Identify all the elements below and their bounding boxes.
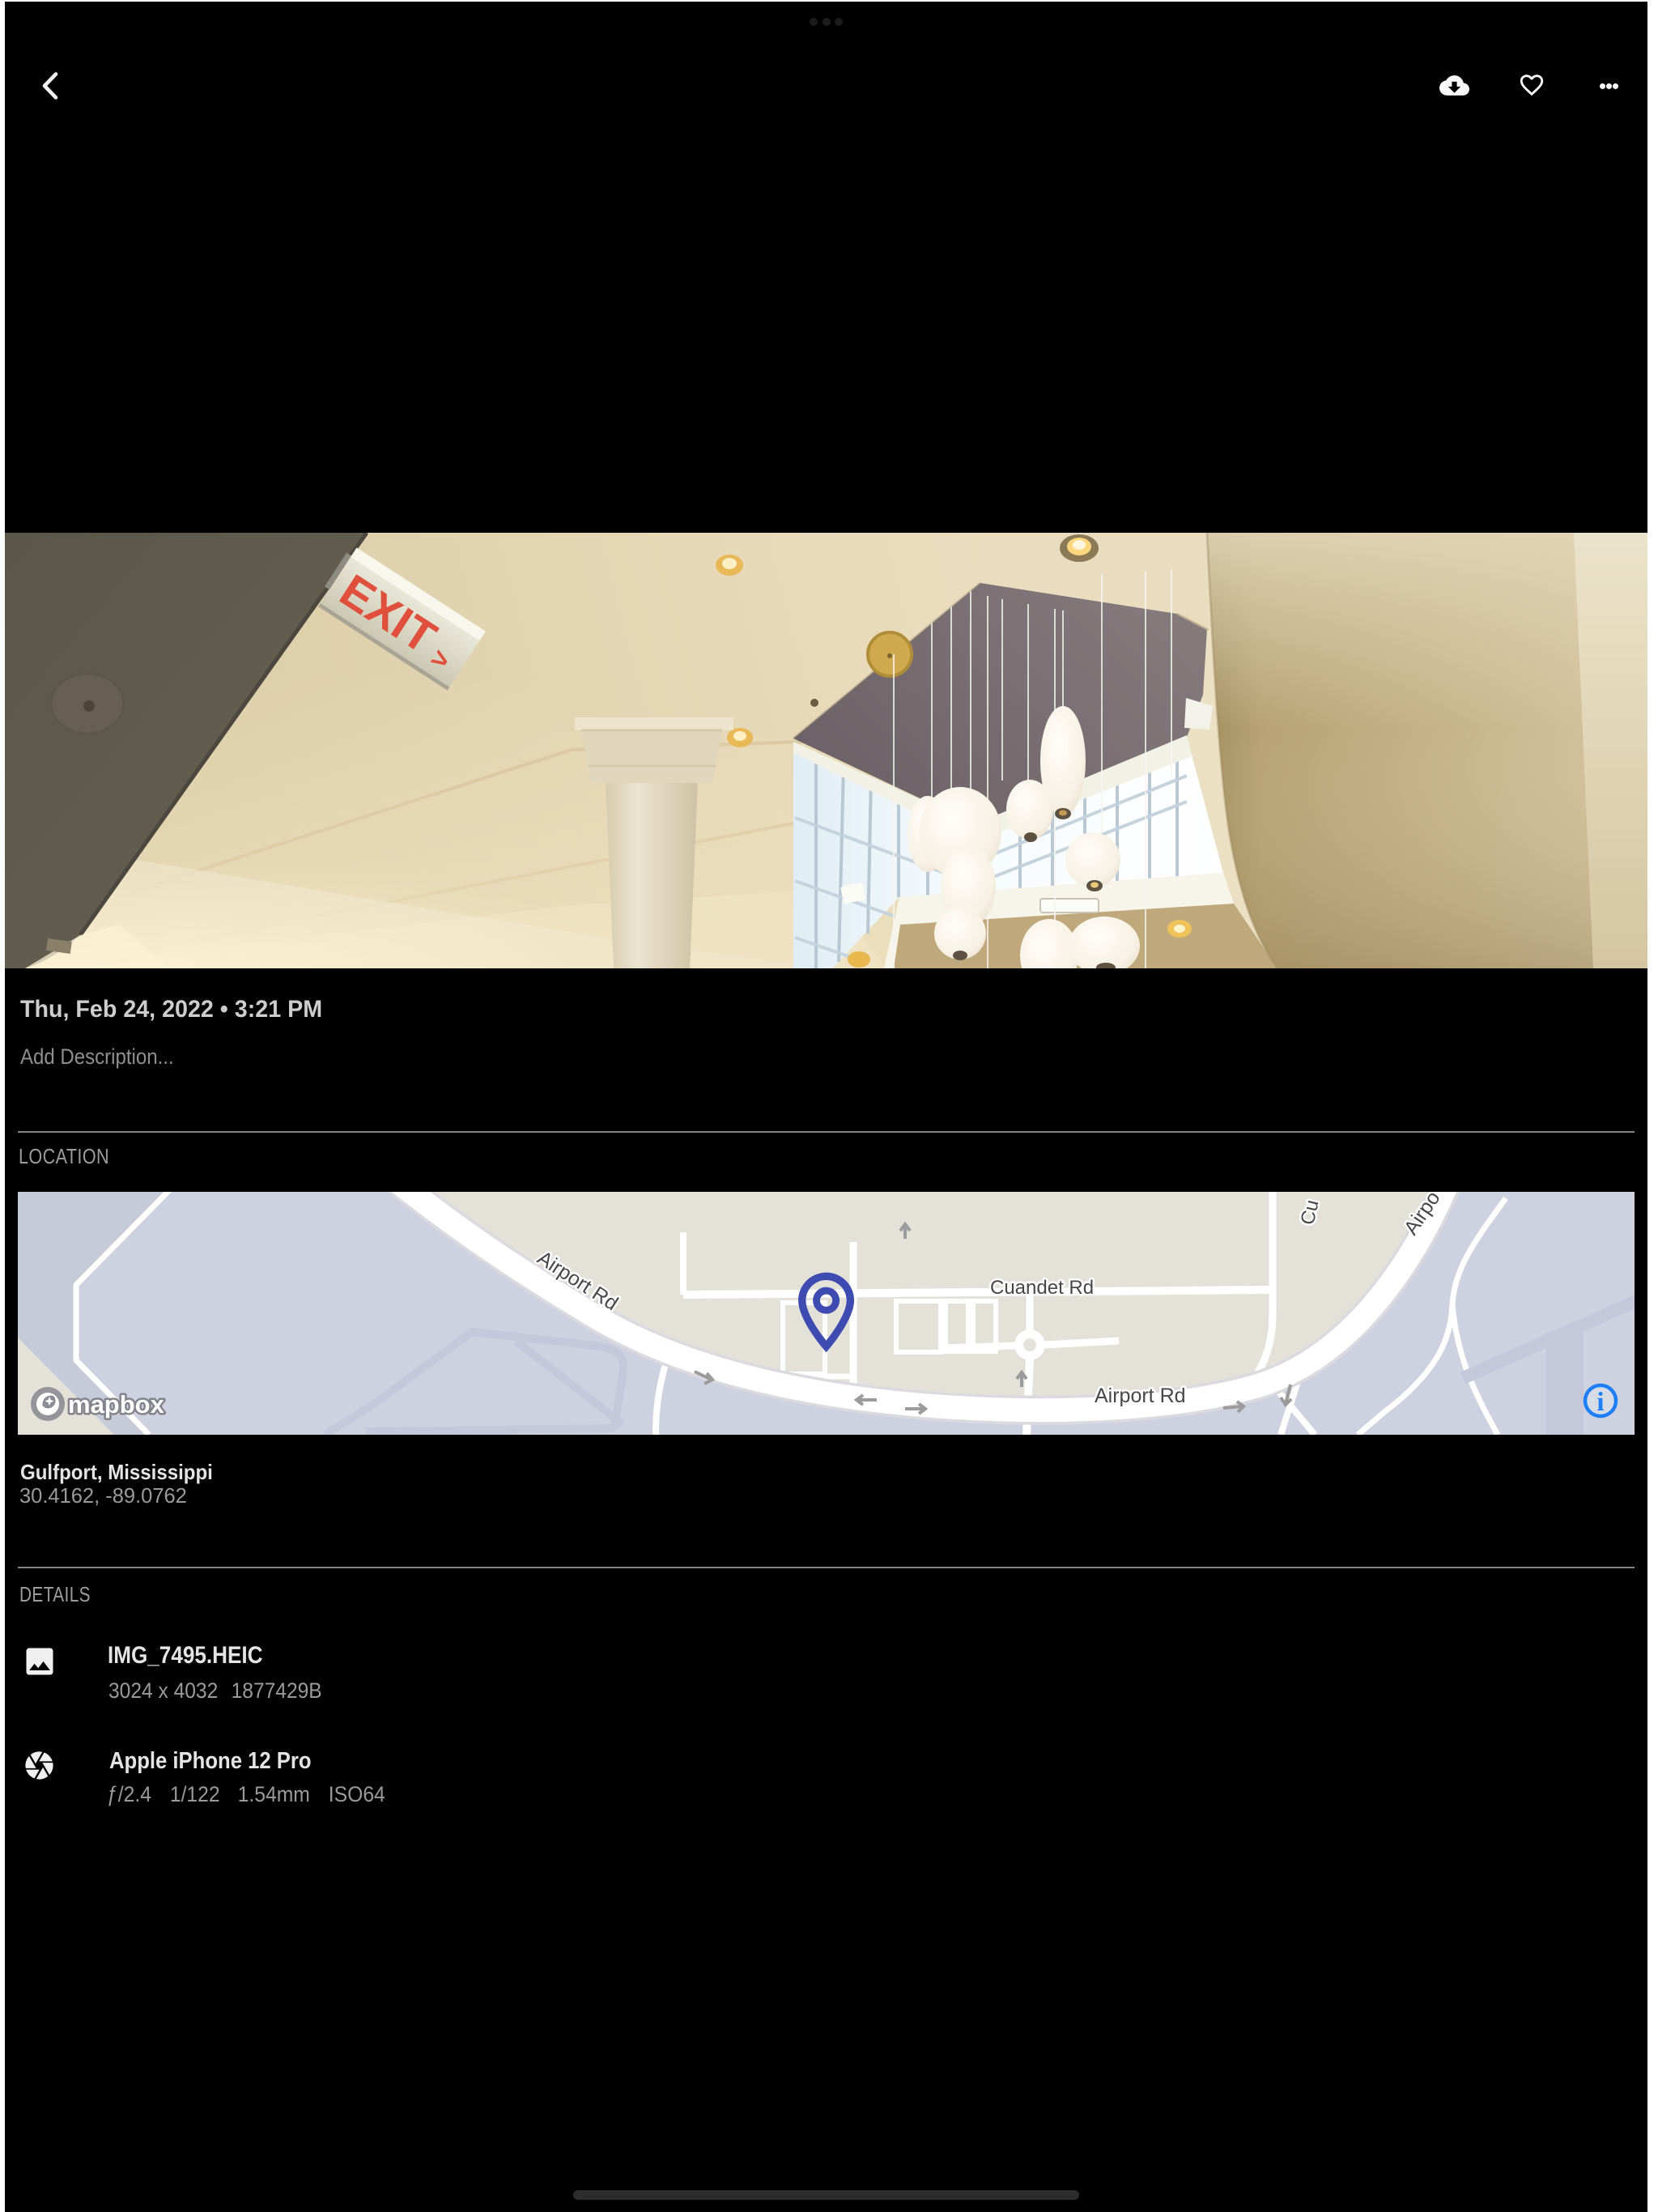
svg-text:Airport Rd: Airport Rd — [1095, 1385, 1186, 1407]
svg-text:mapbox: mapbox — [68, 1390, 165, 1419]
svg-text:i: i — [1596, 1388, 1604, 1417]
svg-text:Cuandet Rd: Cuandet Rd — [990, 1277, 1094, 1299]
